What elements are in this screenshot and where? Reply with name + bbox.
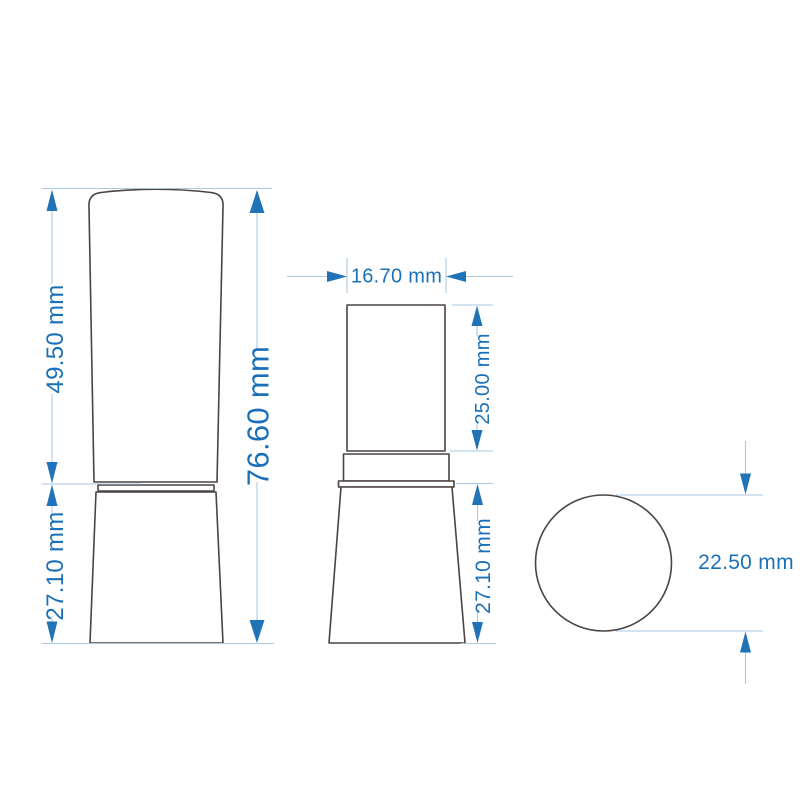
cap-collar-ring-outline — [98, 485, 214, 491]
tube-top-circle-outline — [536, 495, 672, 631]
drawing-page: 49.50 mm 27.10 mm 76.60 mm 16.70 mm 25.0… — [0, 0, 800, 800]
technical-drawing-canvas: 49.50 mm 27.10 mm 76.60 mm 16.70 mm 25.0… — [0, 0, 800, 800]
arrowhead-right-icon — [327, 271, 347, 282]
dim-label-cup-width: 16.70 mm — [351, 266, 442, 288]
cap-outline — [89, 189, 223, 482]
arrowhead-down-icon — [47, 462, 58, 484]
arrowhead-up-icon — [47, 485, 58, 507]
collar-ring-outline — [339, 481, 455, 487]
dim-label-base-height-middle: 27.10 mm — [472, 518, 495, 614]
arrowhead-up-icon — [47, 190, 58, 212]
collar-outline — [344, 454, 450, 481]
arrowhead-up-icon — [472, 306, 483, 327]
arrowhead-up-icon — [472, 484, 483, 505]
open-base-outline — [329, 487, 465, 643]
arrowhead-down-icon — [250, 620, 265, 643]
inner-cup-outline — [347, 305, 445, 451]
front-open-view — [329, 305, 465, 643]
closed-base-outline — [90, 492, 223, 643]
arrowhead-up-icon — [740, 632, 751, 653]
dim-label-total-height: 76.60 mm — [241, 346, 276, 486]
arrowhead-down-icon — [472, 430, 483, 451]
arrowhead-up-icon — [250, 190, 265, 213]
dim-label-base-height-left: 27.10 mm — [42, 511, 69, 620]
top-view — [536, 495, 672, 631]
arrowhead-down-icon — [47, 622, 58, 644]
arrowhead-down-icon — [740, 474, 751, 495]
dim-label-cap-height: 49.50 mm — [42, 284, 69, 393]
front-closed-view — [89, 189, 223, 643]
arrowhead-down-icon — [472, 622, 483, 643]
dim-label-cup-height: 25.00 mm — [472, 333, 494, 424]
arrowhead-left-icon — [446, 271, 466, 282]
dim-label-diameter: 22.50 mm — [698, 551, 794, 574]
